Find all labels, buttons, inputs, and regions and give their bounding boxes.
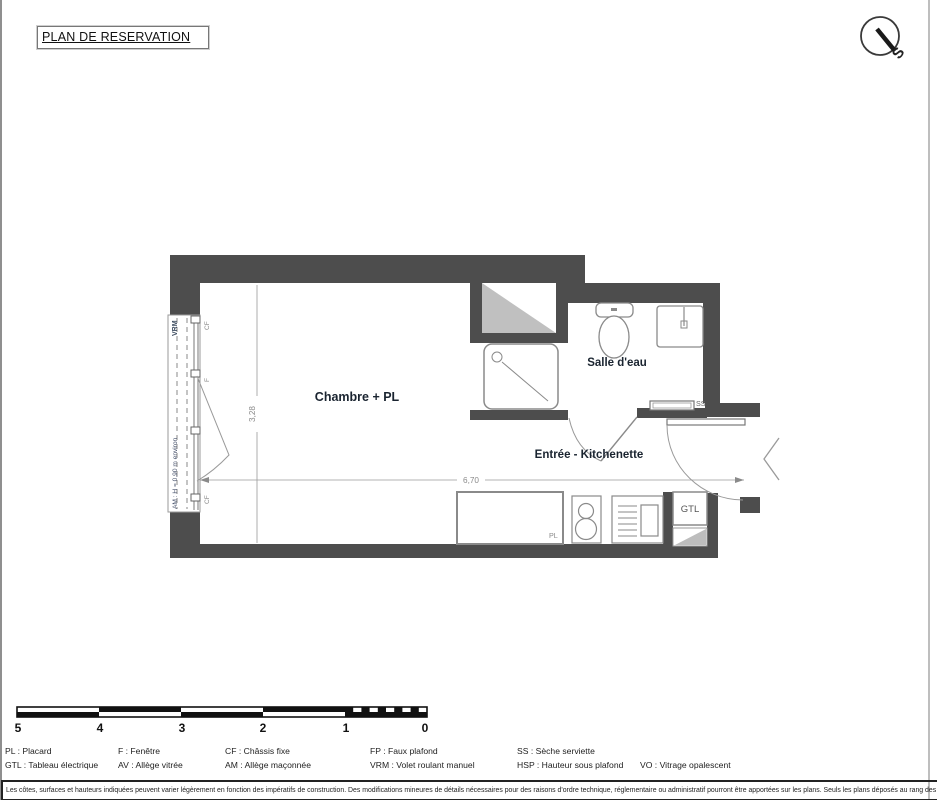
window-assembly: VRM AM : H = 0,90 m environ CF F CF — [168, 315, 229, 512]
sink-icon — [612, 496, 663, 543]
washbasin-icon — [657, 306, 703, 347]
compass: S — [861, 17, 908, 62]
dimension-width: 6,70 — [200, 474, 744, 485]
legend-item-fp: FP : Faux plafond — [370, 746, 438, 756]
scale-bar: 5 4 3 2 1 0 — [15, 707, 429, 735]
dimension-depth: 3,28 — [248, 285, 261, 543]
legend-item-am: AM : Allège maçonnée — [225, 760, 311, 770]
legend-item-ss: SS : Sèche serviette — [517, 746, 595, 756]
legend-item-pl: PL : Placard — [5, 746, 52, 756]
wall-bathroom-right — [703, 303, 720, 403]
dimension-width-value: 6,70 — [463, 476, 479, 485]
cooktop-icon — [572, 496, 601, 543]
scale-tick-0: 0 — [422, 721, 429, 735]
legend-item-cf: CF : Châssis fixe — [225, 746, 290, 756]
dimension-depth-value: 3,28 — [248, 406, 257, 422]
entrance-door — [667, 419, 745, 500]
room-label-entree: Entrée - Kitchenette — [535, 449, 644, 461]
room-label-salle-eau: Salle d'eau — [587, 357, 647, 369]
am-label: AM : H = 0,90 m environ — [172, 437, 179, 509]
scale-tick-4: 4 — [97, 721, 104, 735]
wall-kitchen-divider — [663, 492, 673, 545]
room-label-chambre: Chambre + PL — [315, 390, 400, 404]
scale-bar-segments — [17, 707, 427, 717]
pl-label: PL — [549, 531, 558, 540]
entry-chevron-icon — [764, 438, 779, 480]
legend-item-vo: VO : Vitrage opalescent — [640, 760, 731, 770]
wall-bathroom-top — [568, 283, 720, 303]
scale-tick-1: 1 — [343, 721, 350, 735]
gtl-label: GTL — [681, 504, 699, 515]
wall-shaft-bottom — [470, 333, 568, 343]
scale-tick-5: 5 — [15, 721, 22, 735]
compass-south-label: S — [889, 44, 909, 62]
floor-plan-page: PLAN DE RESERVATION S — [0, 0, 937, 800]
scale-bar-ticks: 5 4 3 2 1 0 — [15, 721, 429, 735]
legend-item-gtl: GTL : Tableau électrique — [5, 760, 98, 770]
wall-right-lower — [707, 493, 718, 548]
scale-tick-3: 3 — [179, 721, 186, 735]
wall-left-upper — [170, 255, 200, 317]
room-labels: Chambre + PL Salle d'eau Entrée - Kitche… — [315, 357, 647, 461]
floor-plan-drawing: S — [0, 0, 937, 800]
disclaimer-text: Les côtes, surfaces et hauteurs indiquée… — [1, 780, 937, 800]
legend-item-av: AV : Allège vitrée — [118, 760, 183, 770]
cf-bottom-label: CF — [204, 495, 211, 504]
toilet-icon — [596, 303, 633, 358]
shaft-hatch-triangle — [482, 283, 556, 333]
wall-top — [170, 255, 585, 283]
window-swing-arc — [197, 376, 229, 481]
cf-top-label: CF — [204, 321, 211, 330]
ss-label: SS — [696, 399, 706, 408]
legend-item-f: F : Fenêtre — [118, 746, 160, 756]
wall-below-shower — [470, 410, 568, 420]
wall-entry-right — [705, 403, 760, 417]
legend-item-hsp: HSP : Hauteur sous plafond — [517, 760, 623, 770]
gtl-box: GTL — [673, 492, 707, 546]
shower-tray-icon — [484, 344, 558, 409]
f-label: F — [204, 378, 211, 382]
wall-bottom — [170, 544, 718, 558]
wall-shaft-right — [556, 283, 568, 343]
scale-tick-2: 2 — [260, 721, 267, 735]
closet-pl-box — [457, 492, 563, 544]
wall-door-stop — [740, 497, 760, 513]
legend-item-vrm: VRM : Volet roulant manuel — [370, 760, 475, 770]
vrm-label: VRM — [172, 320, 179, 336]
